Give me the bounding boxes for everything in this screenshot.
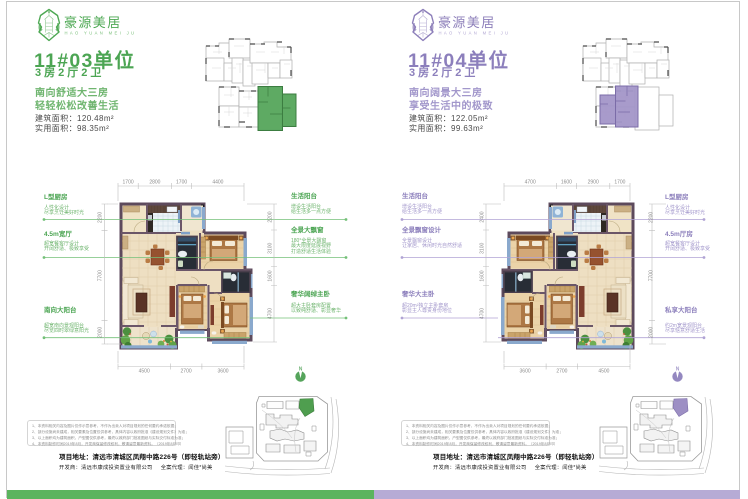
svg-text:4700: 4700 — [268, 308, 274, 319]
svg-text:4400: 4400 — [212, 180, 223, 186]
svg-text:4500: 4500 — [139, 369, 150, 375]
svg-text:4700: 4700 — [480, 308, 486, 319]
svg-text:1700: 1700 — [176, 180, 187, 186]
svg-text:2900: 2900 — [588, 180, 599, 186]
svg-text:1700: 1700 — [614, 180, 625, 186]
svg-text:4500: 4500 — [598, 369, 609, 375]
svg-text:3100: 3100 — [268, 243, 274, 254]
svg-text:豪源美居: 豪源美居 — [64, 15, 122, 30]
svg-text:2000: 2000 — [98, 327, 104, 338]
svg-text:HAO YUAN MEI JU: HAO YUAN MEI JU — [439, 31, 511, 36]
svg-text:1600: 1600 — [480, 270, 486, 281]
svg-text:3600: 3600 — [217, 369, 228, 375]
svg-text:HAO YUAN MEI JU: HAO YUAN MEI JU — [65, 31, 137, 36]
svg-text:3100: 3100 — [480, 243, 486, 254]
svg-text:1600: 1600 — [561, 180, 572, 186]
svg-text:2200: 2200 — [268, 211, 274, 222]
svg-text:1700: 1700 — [123, 180, 134, 186]
svg-text:2200: 2200 — [649, 212, 655, 223]
svg-text:4700: 4700 — [525, 180, 536, 186]
svg-text:2700: 2700 — [181, 369, 192, 375]
svg-text:2800: 2800 — [149, 180, 160, 186]
svg-text:2700: 2700 — [556, 369, 567, 375]
svg-text:7700: 7700 — [649, 270, 655, 281]
svg-text:豪源美居: 豪源美居 — [438, 15, 496, 30]
svg-text:3600: 3600 — [520, 369, 531, 375]
svg-text:1600: 1600 — [268, 270, 274, 281]
svg-text:2000: 2000 — [649, 327, 655, 338]
svg-text:2200: 2200 — [98, 212, 104, 223]
svg-text:7700: 7700 — [98, 270, 104, 281]
svg-text:2400: 2400 — [480, 211, 486, 222]
